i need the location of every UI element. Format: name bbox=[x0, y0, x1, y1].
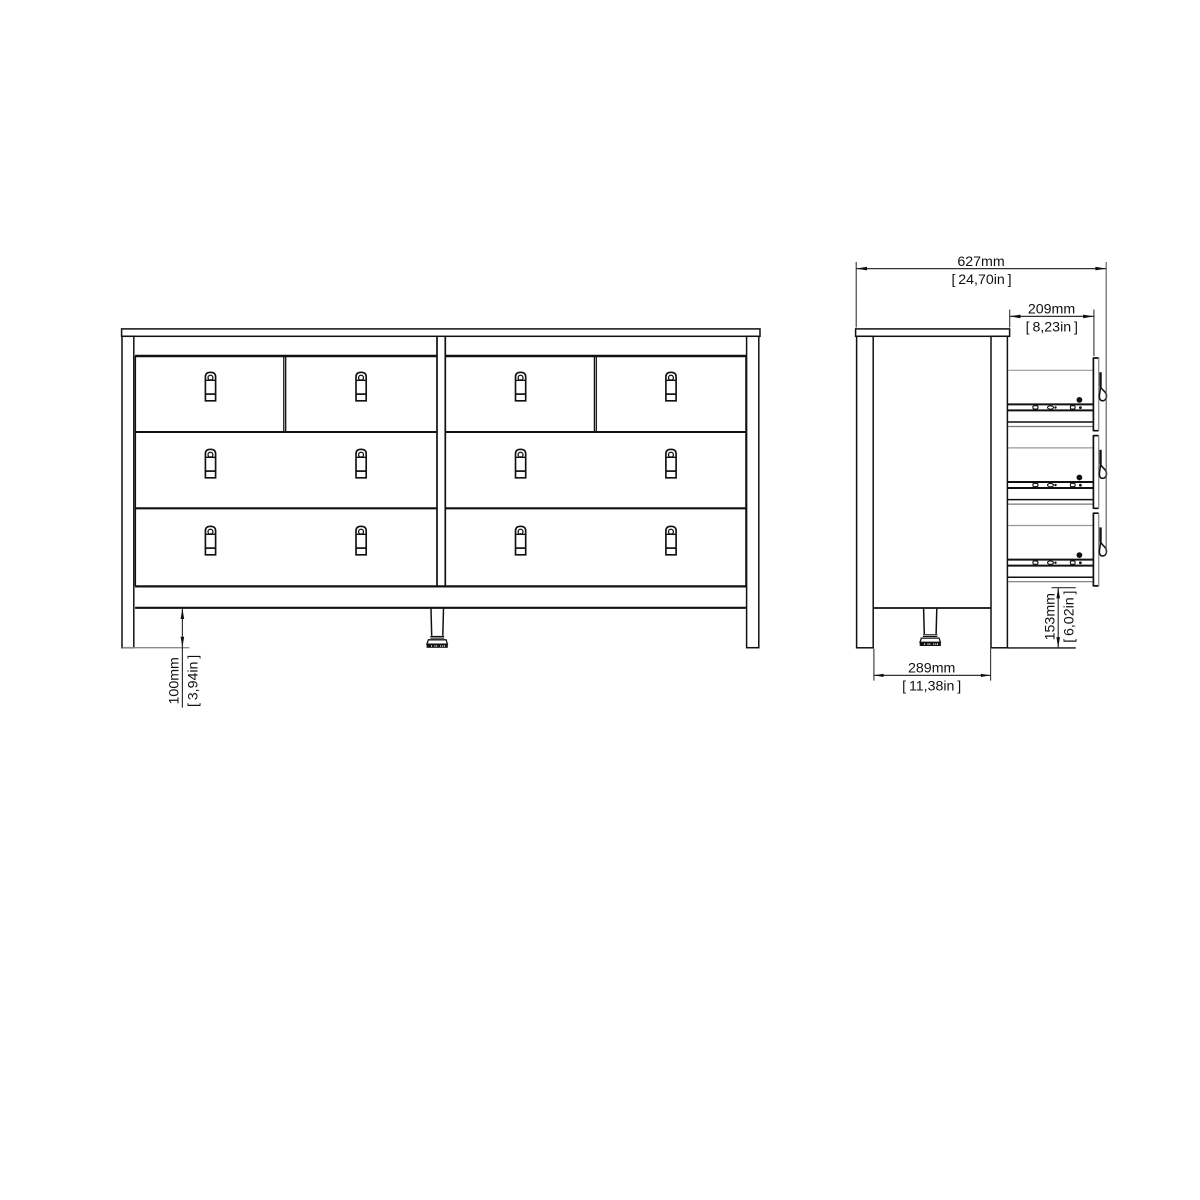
svg-text:100mm: 100mm bbox=[167, 657, 183, 704]
svg-text:[ 8,23in ]: [ 8,23in ] bbox=[1026, 319, 1078, 335]
svg-text:153mm: 153mm bbox=[1042, 593, 1058, 640]
svg-text:[ 6,02in ]: [ 6,02in ] bbox=[1061, 591, 1077, 643]
svg-text:[ 24,70in ]: [ 24,70in ] bbox=[951, 272, 1011, 288]
svg-text:[ 11,38in ]: [ 11,38in ] bbox=[902, 678, 961, 694]
svg-text:627mm: 627mm bbox=[957, 254, 1004, 270]
svg-text:209mm: 209mm bbox=[1028, 302, 1075, 318]
svg-text:289mm: 289mm bbox=[908, 660, 955, 676]
svg-text:[ 3,94in ]: [ 3,94in ] bbox=[186, 655, 202, 707]
